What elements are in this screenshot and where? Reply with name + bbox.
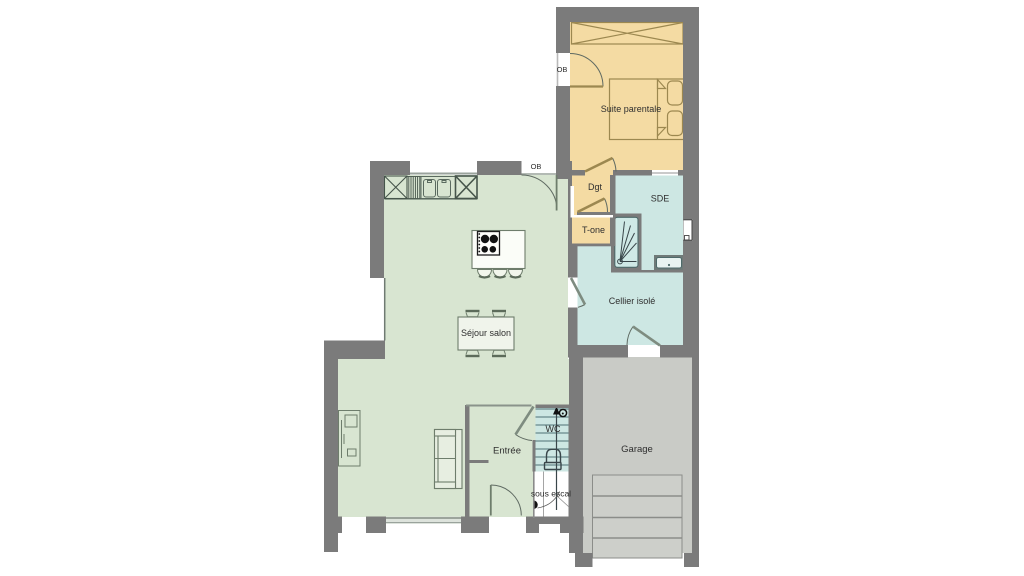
svg-text:Dgt: Dgt (588, 182, 603, 192)
svg-text:T-one: T-one (582, 225, 605, 235)
svg-text:OB: OB (531, 162, 542, 171)
svg-text:SDE: SDE (651, 194, 670, 204)
svg-text:Garage: Garage (621, 444, 653, 455)
svg-text:OB: OB (557, 65, 568, 74)
svg-text:WC: WC (546, 424, 561, 434)
svg-text:Entrée: Entrée (493, 446, 521, 457)
svg-text:Suite parentale: Suite parentale (601, 104, 662, 114)
svg-text:Séjour salon: Séjour salon (461, 328, 511, 338)
svg-text:Cellier isolé: Cellier isolé (609, 296, 656, 306)
svg-text:sous escal: sous escal (531, 489, 571, 499)
